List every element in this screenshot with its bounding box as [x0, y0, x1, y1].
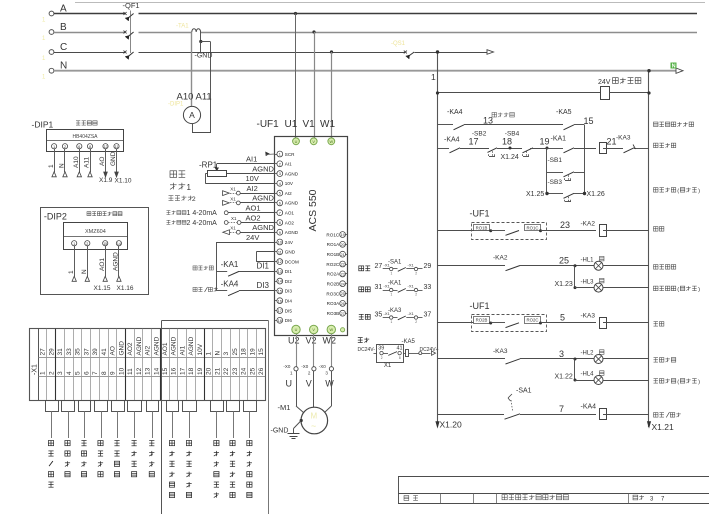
svg-text:2: 2 — [415, 293, 417, 297]
svg-text:22: 22 — [223, 367, 230, 375]
svg-text:AO2: AO2 — [246, 213, 261, 222]
svg-text:-DIP1: -DIP1 — [168, 102, 184, 108]
svg-text:X1: X1 — [230, 187, 236, 192]
svg-text:7: 7 — [279, 211, 281, 215]
svg-text:V: V — [306, 379, 312, 389]
svg-text:35: 35 — [75, 348, 82, 356]
svg-text:31: 31 — [375, 284, 383, 291]
svg-text:-QF1: -QF1 — [123, 1, 140, 10]
svg-text:N: N — [81, 269, 88, 274]
svg-text:11: 11 — [127, 368, 134, 375]
svg-text:AI1: AI1 — [246, 155, 257, 164]
svg-text:-SB1: -SB1 — [548, 157, 563, 164]
svg-text:X1.15: X1.15 — [94, 285, 111, 292]
svg-text:-KA4: -KA4 — [444, 137, 460, 144]
svg-text:X1: X1 — [230, 196, 236, 201]
svg-text:1: 1 — [391, 272, 393, 276]
svg-text:27: 27 — [375, 263, 383, 270]
svg-text:AO1: AO1 — [162, 342, 169, 355]
svg-text:8: 8 — [89, 145, 91, 149]
svg-text:RO1C: RO1C — [527, 225, 539, 230]
svg-text:9: 9 — [279, 231, 281, 235]
svg-text:-X1: -X1 — [32, 364, 39, 375]
svg-text:-KA1: -KA1 — [221, 260, 239, 269]
svg-text:A11: A11 — [84, 157, 91, 168]
svg-text:U2: U2 — [288, 336, 300, 346]
svg-text:-KA3: -KA3 — [616, 135, 631, 142]
svg-text:U: U — [295, 328, 298, 332]
svg-text:1: 1 — [431, 72, 436, 82]
svg-text:15: 15 — [103, 242, 107, 246]
svg-text:37: 37 — [424, 311, 432, 318]
svg-text:): ) — [698, 189, 700, 195]
svg-text:1: 1 — [40, 371, 47, 375]
svg-text:AGND: AGND — [188, 336, 195, 355]
svg-text:-KA2: -KA2 — [581, 220, 596, 227]
svg-text:AI1: AI1 — [180, 345, 187, 355]
svg-text:RO1A: RO1A — [327, 242, 340, 247]
svg-text:19: 19 — [197, 367, 204, 375]
svg-text:29: 29 — [48, 348, 55, 356]
svg-text:1 4-20mA: 1 4-20mA — [187, 210, 218, 217]
svg-text:-SA1: -SA1 — [516, 388, 532, 395]
svg-text:-SB3: -SB3 — [548, 179, 563, 186]
svg-text:N: N — [59, 163, 66, 168]
svg-text:ACS 550: ACS 550 — [307, 189, 319, 231]
svg-text:8: 8 — [399, 356, 401, 360]
svg-text:GND: GND — [285, 250, 296, 255]
svg-text:-HL1: -HL1 — [581, 257, 595, 263]
svg-text:-RP1: -RP1 — [199, 161, 218, 170]
svg-text:N: N — [672, 64, 676, 70]
svg-text:X1: X1 — [384, 363, 392, 369]
svg-text:24V: 24V — [246, 233, 259, 242]
svg-text:-QS1: -QS1 — [391, 41, 406, 47]
svg-text:7: 7 — [559, 404, 564, 414]
svg-text:RO2A: RO2A — [327, 272, 340, 277]
svg-text:AGND: AGND — [113, 252, 120, 271]
svg-text:10: 10 — [118, 367, 125, 375]
svg-text:~: ~ — [311, 421, 316, 431]
svg-text:DI4: DI4 — [285, 299, 293, 304]
svg-text:U: U — [286, 379, 293, 389]
svg-text:): ) — [698, 287, 700, 293]
svg-text:23: 23 — [560, 220, 570, 230]
svg-text:AI2: AI2 — [145, 345, 152, 355]
svg-text:14: 14 — [117, 242, 121, 246]
svg-text:26: 26 — [258, 367, 265, 375]
svg-text:-M1: -M1 — [278, 403, 291, 412]
svg-text:-KA3: -KA3 — [493, 348, 508, 355]
svg-text:11: 11 — [115, 145, 119, 149]
svg-text:10V: 10V — [197, 343, 204, 355]
svg-text:4: 4 — [66, 371, 73, 375]
svg-text:-HL2: -HL2 — [581, 351, 595, 357]
svg-text:1: 1 — [206, 352, 213, 356]
svg-text:5: 5 — [279, 192, 281, 196]
svg-text:-KA1: -KA1 — [551, 135, 567, 142]
svg-text:13: 13 — [483, 116, 493, 126]
svg-text:16: 16 — [171, 367, 178, 375]
svg-text:X1.25: X1.25 — [526, 191, 544, 198]
svg-text:X1.16: X1.16 — [117, 285, 134, 292]
svg-text:-HL3: -HL3 — [581, 279, 595, 285]
svg-text:AO1: AO1 — [99, 258, 106, 271]
svg-text:19: 19 — [540, 136, 550, 146]
svg-text:2 4-20mA: 2 4-20mA — [187, 220, 218, 227]
svg-text:V: V — [312, 140, 315, 144]
svg-text:V: V — [312, 328, 315, 332]
svg-text:(: ( — [677, 189, 679, 195]
svg-text:25: 25 — [340, 292, 344, 296]
svg-text:25: 25 — [559, 256, 569, 266]
svg-text:-HL4: -HL4 — [581, 372, 595, 378]
svg-text:10V: 10V — [285, 181, 294, 186]
svg-text:15: 15 — [584, 116, 594, 126]
svg-text:1: 1 — [48, 164, 55, 168]
svg-text:X1.26: X1.26 — [587, 191, 605, 198]
svg-text:RO2B: RO2B — [327, 282, 340, 287]
svg-text:-UF1: -UF1 — [470, 209, 490, 219]
svg-text:24: 24 — [340, 282, 344, 286]
svg-text:-UF1: -UF1 — [257, 119, 280, 130]
svg-text:X1.21: X1.21 — [652, 422, 674, 432]
svg-text:AGND: AGND — [252, 194, 274, 203]
svg-text:-GND: -GND — [195, 53, 213, 60]
svg-text:18: 18 — [241, 348, 248, 356]
svg-text:16: 16 — [278, 299, 282, 303]
svg-text:31: 31 — [57, 348, 64, 356]
svg-text:-KA3: -KA3 — [581, 313, 596, 320]
svg-text:AO: AO — [110, 346, 117, 355]
svg-text:7: 7 — [92, 371, 99, 375]
svg-text:-X0: -X0 — [301, 364, 309, 369]
svg-text:-KA4: -KA4 — [447, 109, 463, 116]
svg-text:24V: 24V — [285, 240, 294, 245]
svg-text:RO2C: RO2C — [326, 262, 339, 267]
svg-text:2: 2 — [48, 371, 55, 375]
svg-text:12: 12 — [278, 260, 282, 264]
svg-text:27: 27 — [40, 348, 47, 356]
svg-text:N: N — [214, 351, 221, 356]
svg-text:24V: 24V — [598, 79, 611, 86]
svg-text:-UF1: -UF1 — [470, 301, 490, 311]
svg-text:2: 2 — [279, 162, 281, 166]
svg-text:14: 14 — [278, 280, 282, 284]
svg-text:19: 19 — [249, 348, 256, 356]
svg-text:RO2B: RO2B — [476, 318, 488, 323]
svg-text:AGND: AGND — [285, 171, 299, 176]
svg-text:AI2: AI2 — [285, 191, 292, 196]
svg-text:RO3B: RO3B — [327, 311, 340, 316]
svg-text:20: 20 — [206, 367, 213, 375]
svg-text:RO2C: RO2C — [527, 318, 539, 323]
svg-text:17: 17 — [469, 136, 479, 146]
svg-text:-KA3: -KA3 — [388, 308, 402, 314]
svg-text:W: W — [330, 328, 334, 332]
svg-text:XMZ604: XMZ604 — [85, 229, 106, 235]
svg-text:12: 12 — [104, 145, 108, 149]
svg-text:18: 18 — [278, 319, 282, 323]
svg-text:18: 18 — [188, 367, 195, 375]
svg-text:3: 3 — [279, 172, 281, 176]
svg-text:1: 1 — [73, 242, 75, 246]
svg-text:AGND: AGND — [171, 336, 178, 355]
svg-text:AO1: AO1 — [246, 204, 261, 213]
svg-text:15: 15 — [278, 290, 282, 294]
svg-text:8: 8 — [101, 371, 108, 375]
svg-text:1: 1 — [391, 293, 393, 297]
svg-text:): ) — [698, 380, 700, 386]
svg-text:15: 15 — [258, 348, 265, 356]
svg-text:6: 6 — [279, 202, 281, 206]
svg-text:X1.23: X1.23 — [555, 281, 573, 288]
svg-text:8: 8 — [279, 221, 281, 225]
svg-text:(: ( — [677, 380, 679, 386]
svg-text:DI1: DI1 — [285, 269, 293, 274]
svg-text:A: A — [189, 110, 195, 120]
svg-text:4: 4 — [279, 182, 281, 186]
svg-text:-X0: -X0 — [283, 364, 291, 369]
svg-text:V2: V2 — [306, 336, 317, 346]
svg-text:-SB4: -SB4 — [505, 131, 520, 138]
svg-text:W1: W1 — [320, 119, 335, 130]
svg-text:-X1: -X1 — [408, 284, 415, 289]
svg-text:RO1C: RO1C — [326, 232, 339, 237]
svg-text:2: 2 — [415, 320, 417, 324]
svg-text:13: 13 — [145, 367, 152, 375]
svg-text:M: M — [311, 412, 318, 421]
svg-text:12: 12 — [136, 367, 143, 375]
svg-text:21: 21 — [607, 136, 617, 146]
svg-text:25: 25 — [249, 367, 256, 375]
svg-text:25: 25 — [232, 348, 239, 356]
svg-text:X1.22: X1.22 — [555, 373, 573, 380]
svg-text:AGND: AGND — [252, 164, 274, 173]
svg-text:-SB2: -SB2 — [472, 131, 487, 138]
svg-text:1: 1 — [187, 183, 192, 192]
svg-text:10: 10 — [278, 241, 282, 245]
svg-text:2: 2 — [64, 145, 66, 149]
svg-text:X1.10: X1.10 — [115, 178, 132, 185]
svg-text:41: 41 — [397, 345, 403, 351]
svg-text:33: 33 — [424, 284, 432, 291]
svg-text:33: 33 — [66, 348, 73, 356]
svg-text:1: 1 — [391, 320, 393, 324]
svg-text:1: 1 — [53, 145, 55, 149]
svg-text:1: 1 — [279, 153, 281, 157]
svg-text:-TA1: -TA1 — [176, 24, 189, 30]
svg-text:-GND: -GND — [271, 428, 289, 435]
svg-text:6: 6 — [83, 371, 90, 375]
svg-text:-DIP1: -DIP1 — [32, 120, 54, 130]
svg-text:X1: X1 — [230, 226, 236, 231]
svg-text:23: 23 — [232, 367, 239, 375]
svg-text:1: 1 — [68, 270, 75, 274]
svg-text:15: 15 — [162, 367, 169, 375]
svg-text:RO3A: RO3A — [327, 301, 340, 306]
svg-text:RO1B: RO1B — [327, 252, 340, 257]
svg-text:2: 2 — [381, 356, 383, 360]
svg-text:GND: GND — [118, 341, 125, 356]
svg-text:AO2: AO2 — [285, 220, 295, 225]
svg-text:19: 19 — [340, 233, 344, 237]
svg-text:DC24V+: DC24V+ — [420, 347, 439, 353]
svg-text:-KA4: -KA4 — [581, 404, 597, 411]
svg-text:DC24V-: DC24V- — [358, 347, 376, 353]
svg-text:21: 21 — [340, 253, 344, 257]
svg-text:V1: V1 — [303, 119, 316, 130]
svg-text:14: 14 — [153, 367, 160, 375]
svg-text:X1.20: X1.20 — [440, 420, 462, 430]
svg-text:20: 20 — [340, 243, 344, 247]
svg-text:-KA4: -KA4 — [221, 279, 239, 288]
svg-text:W: W — [330, 140, 334, 144]
svg-text:RO1B: RO1B — [476, 225, 488, 230]
svg-text:3: 3 — [223, 352, 230, 356]
svg-text:5: 5 — [75, 371, 82, 375]
svg-text:-X0: -X0 — [319, 364, 327, 369]
svg-text:A10: A10 — [73, 156, 80, 168]
svg-text:2: 2 — [86, 242, 88, 246]
svg-text:C: C — [60, 42, 67, 53]
svg-text:2: 2 — [415, 272, 417, 276]
svg-text:24: 24 — [241, 367, 248, 375]
svg-text:X1: X1 — [231, 216, 237, 221]
svg-text:DI2: DI2 — [285, 279, 293, 284]
svg-text:W: W — [325, 379, 334, 389]
svg-text:26: 26 — [340, 302, 344, 306]
svg-text:-DIP2: -DIP2 — [44, 212, 67, 222]
svg-text:AGND: AGND — [285, 230, 299, 235]
svg-text:RO3C: RO3C — [326, 291, 339, 296]
svg-text:18: 18 — [502, 136, 512, 146]
svg-text:-KA2: -KA2 — [493, 255, 508, 262]
svg-text:-KA5: -KA5 — [556, 109, 572, 116]
svg-text:39: 39 — [378, 345, 384, 351]
svg-text:35: 35 — [375, 311, 383, 318]
svg-text:U1: U1 — [285, 119, 298, 130]
svg-text:-X1: -X1 — [408, 311, 415, 316]
svg-text:X1.9: X1.9 — [99, 177, 113, 184]
svg-text:DI5: DI5 — [285, 308, 293, 313]
svg-text:11: 11 — [278, 250, 282, 254]
svg-text:27: 27 — [340, 312, 344, 316]
svg-text:HB404ZSA: HB404ZSA — [72, 134, 98, 140]
svg-text:AGND: AGND — [252, 223, 274, 232]
svg-text:-SA1: -SA1 — [388, 260, 402, 266]
svg-text:GND: GND — [110, 151, 117, 166]
svg-text:3: 3 — [559, 349, 564, 359]
svg-text:AO2: AO2 — [127, 342, 134, 355]
svg-text:23: 23 — [340, 273, 344, 277]
svg-text:AO: AO — [99, 157, 106, 166]
svg-text:AO1: AO1 — [285, 211, 295, 216]
svg-text:21: 21 — [214, 367, 221, 375]
svg-text:-X1: -X1 — [408, 263, 415, 268]
svg-text:10V: 10V — [246, 174, 259, 183]
svg-text:DI3: DI3 — [285, 289, 293, 294]
svg-text:22: 22 — [340, 263, 344, 267]
svg-text:6: 6 — [78, 145, 80, 149]
svg-text:W2: W2 — [323, 336, 337, 346]
svg-text:B: B — [60, 22, 67, 33]
svg-text:3: 3 — [57, 371, 64, 375]
svg-text:-KA1: -KA1 — [388, 281, 402, 287]
svg-text:AI2: AI2 — [247, 184, 258, 193]
svg-text:DCOM: DCOM — [285, 259, 299, 264]
svg-text:13: 13 — [278, 270, 282, 274]
svg-text:DI3: DI3 — [257, 281, 270, 290]
svg-text:41: 41 — [101, 348, 108, 356]
svg-text:X1.24: X1.24 — [501, 154, 519, 161]
svg-text:SCR: SCR — [285, 152, 295, 157]
svg-text:DI1: DI1 — [257, 261, 270, 270]
svg-text:17: 17 — [278, 309, 282, 313]
svg-text:29: 29 — [424, 263, 432, 270]
svg-text:AGND: AGND — [153, 336, 160, 355]
svg-text:AI1: AI1 — [285, 162, 292, 167]
svg-text:2: 2 — [192, 196, 196, 203]
svg-text:AGND: AGND — [136, 336, 143, 355]
svg-text:(: ( — [677, 287, 679, 293]
svg-text:U: U — [295, 140, 298, 144]
svg-text:37: 37 — [83, 348, 90, 356]
svg-text:17: 17 — [180, 367, 187, 375]
svg-text:9: 9 — [110, 371, 117, 375]
svg-text:39: 39 — [92, 348, 99, 356]
svg-text:DI6: DI6 — [285, 318, 293, 323]
svg-text:5: 5 — [560, 312, 565, 322]
svg-text:AGND: AGND — [285, 201, 299, 206]
